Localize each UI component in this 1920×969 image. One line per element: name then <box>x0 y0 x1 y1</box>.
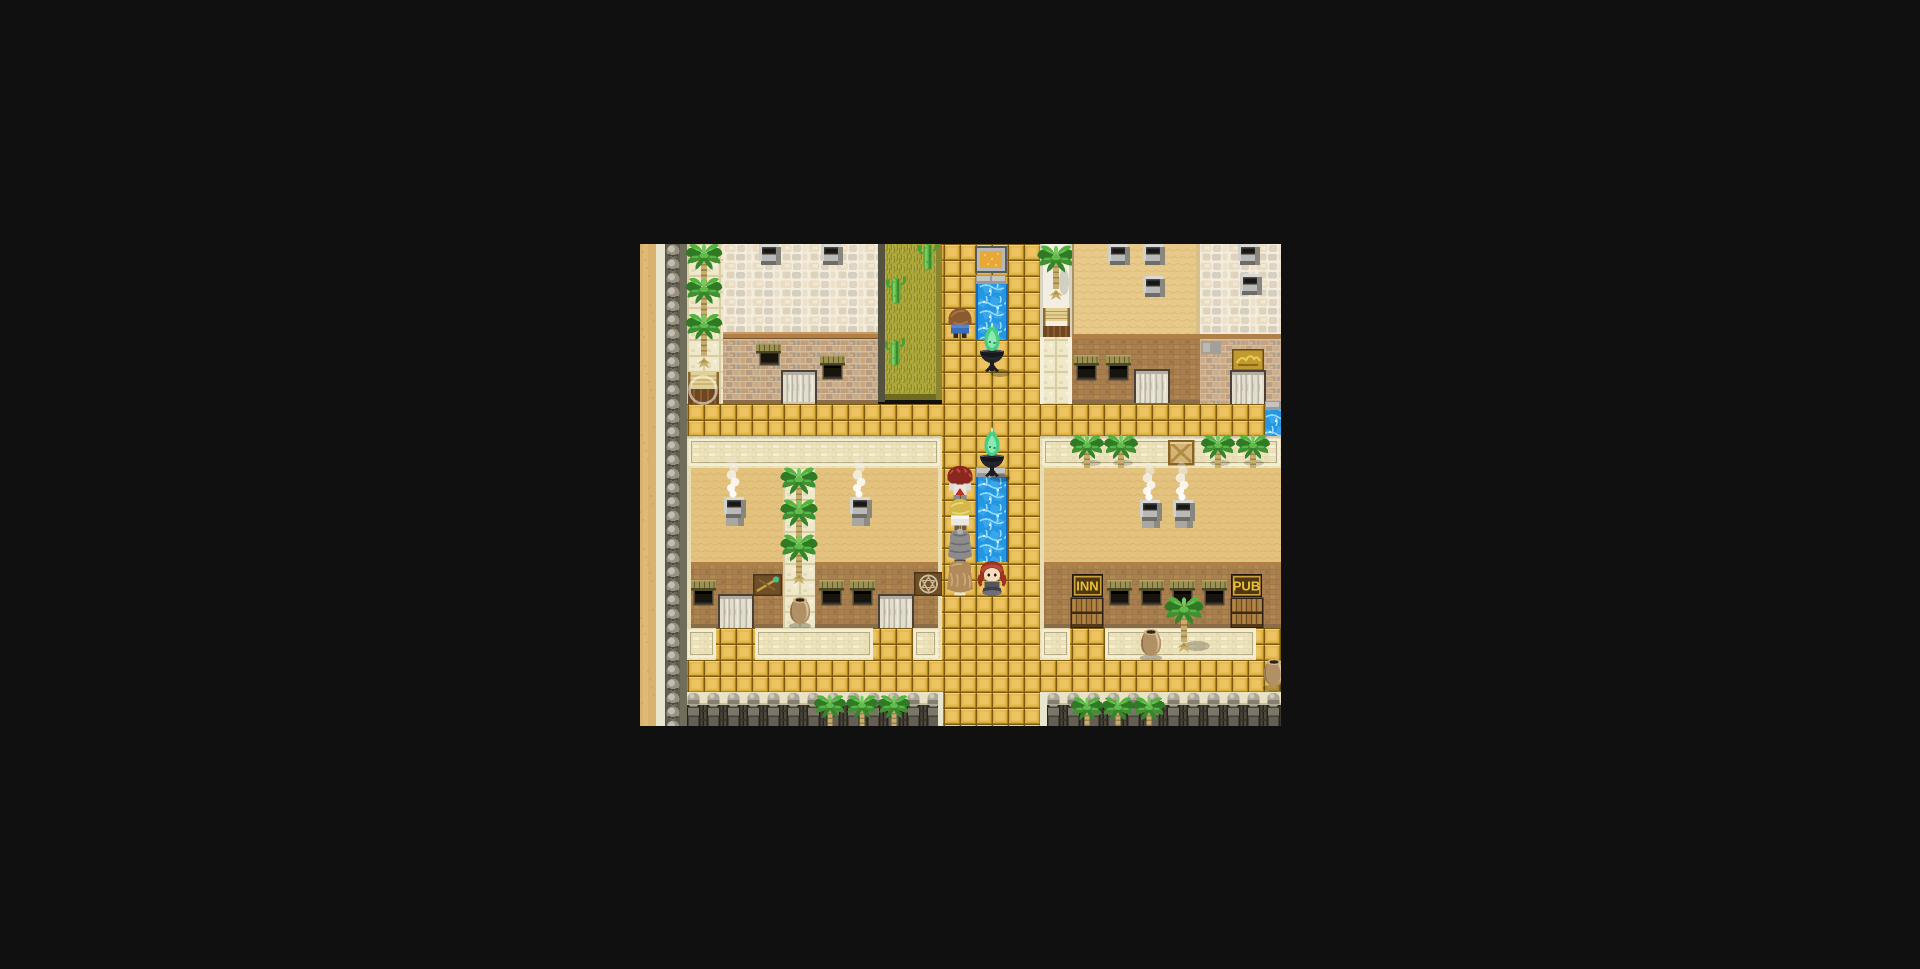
svg-text:PUB: PUB <box>1233 579 1260 594</box>
svg-text:INN: INN <box>1076 579 1098 594</box>
